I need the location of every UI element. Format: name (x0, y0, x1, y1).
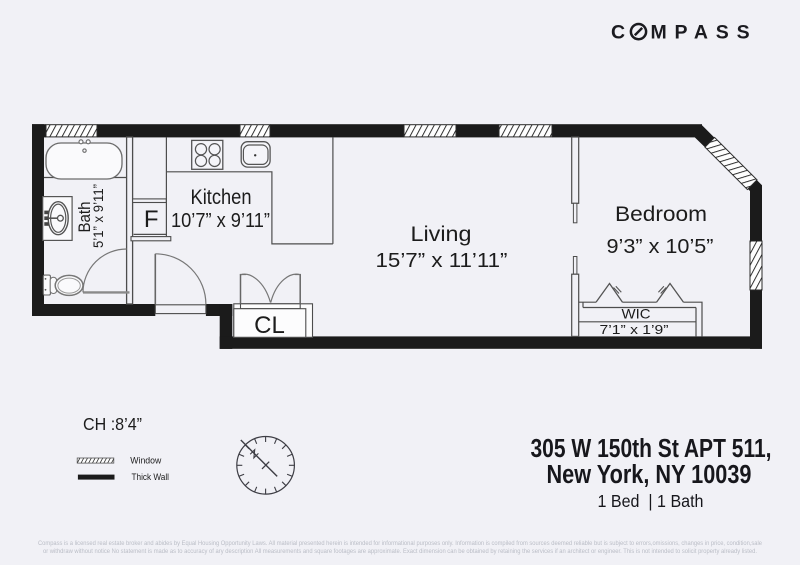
svg-text:CH :8’4”: CH :8’4” (83, 414, 142, 434)
svg-text:1 Bed | 1 Bath: 1 Bed | 1 Bath (598, 491, 704, 511)
svg-text:C: C (611, 22, 633, 44)
svg-text:F: F (144, 206, 159, 233)
svg-text:New York, NY 10039: New York, NY 10039 (547, 461, 752, 489)
svg-text:5’1” x 9’11”: 5’1” x 9’11” (91, 184, 106, 248)
svg-text:15’7” x 11’11”: 15’7” x 11’11” (376, 250, 508, 272)
svg-text:10’7” x 9’11”: 10’7” x 9’11” (171, 210, 270, 232)
svg-text:305 W 150th St APT 511,: 305 W 150th St APT 511, (531, 435, 772, 463)
svg-text:Living: Living (411, 223, 472, 246)
svg-text:Window: Window (130, 456, 161, 466)
svg-text:9’3” x 10’5”: 9’3” x 10’5” (607, 236, 714, 258)
svg-text:CL: CL (254, 312, 285, 339)
svg-text:Thick Wall: Thick Wall (132, 472, 170, 482)
svg-text:Compass is a licensed real est: Compass is a licensed real estate broker… (38, 540, 762, 547)
svg-text:Kitchen: Kitchen (191, 186, 252, 209)
svg-text:WIC: WIC (622, 305, 651, 321)
svg-text:Bedroom: Bedroom (615, 203, 707, 226)
svg-text:7’1” x 1’9”: 7’1” x 1’9” (600, 322, 669, 337)
svg-text:or withdraw without notice No: or withdraw without notice No statement … (43, 548, 757, 555)
svg-text:MPASS: MPASS (651, 22, 758, 44)
